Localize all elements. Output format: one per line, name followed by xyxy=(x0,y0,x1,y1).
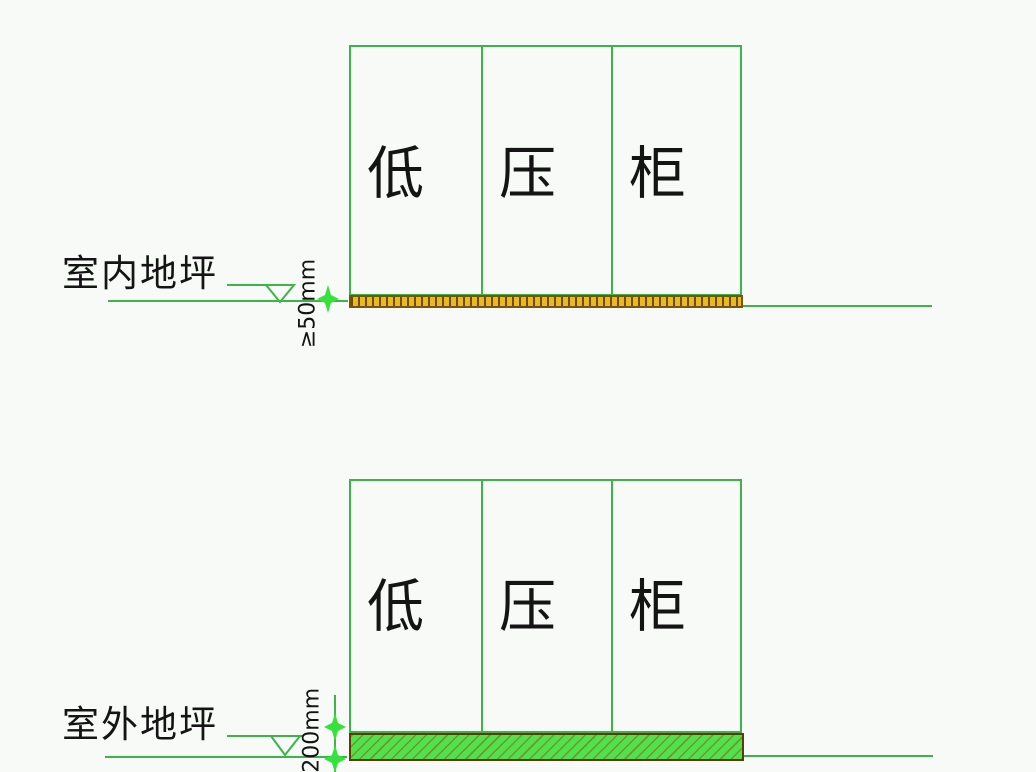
outdoor-floor-line-right xyxy=(742,755,933,757)
indoor-cabinet-section-label: 低 xyxy=(330,142,461,208)
outdoor-cabinet-section-label: 低 xyxy=(330,575,461,641)
outdoor-cabinet-section-label: 柜 xyxy=(592,575,723,641)
outdoor-dimension-marker-bottom-icon xyxy=(324,745,346,772)
indoor-dimension-marker-icon xyxy=(317,285,339,313)
outdoor-base-pad xyxy=(349,733,744,761)
indoor-cabinet-section-label: 压 xyxy=(462,142,593,208)
indoor-base-pad xyxy=(349,295,743,308)
indoor-floor-label: 室内地坪 xyxy=(62,243,218,297)
outdoor-level-triangle-icon xyxy=(270,735,301,756)
indoor-floor-line-right xyxy=(742,305,932,307)
indoor-cabinet-section-label: 柜 xyxy=(592,142,723,208)
outdoor-cabinet-section-label: 压 xyxy=(462,575,593,641)
diagram-canvas: 室内地坪 ≥50mm 低 压 柜 室外地坪 ≥200mm xyxy=(0,0,1036,772)
outdoor-floor-label: 室外地坪 xyxy=(62,694,218,748)
outdoor-clearance-dimension: ≥200mm xyxy=(300,682,325,772)
outdoor-dimension-marker-top-icon xyxy=(324,713,346,741)
